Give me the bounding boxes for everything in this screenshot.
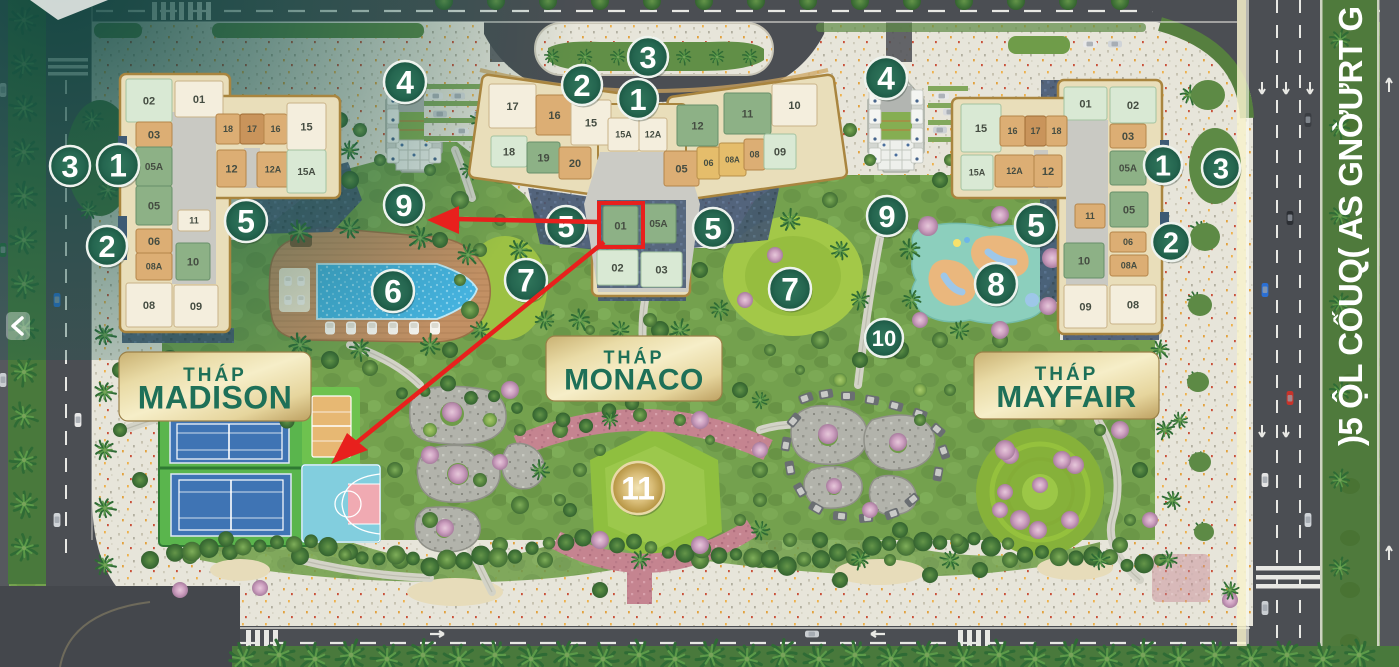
svg-text:17: 17 [247, 124, 257, 134]
svg-text:05: 05 [675, 163, 687, 175]
svg-text:9: 9 [395, 188, 412, 223]
svg-text:05A: 05A [649, 219, 667, 230]
svg-text:09: 09 [190, 301, 202, 313]
svg-text:16: 16 [270, 124, 280, 134]
svg-text:20: 20 [569, 158, 581, 170]
svg-text:11: 11 [189, 216, 199, 226]
svg-text:06: 06 [148, 236, 160, 248]
svg-text:10: 10 [788, 100, 800, 112]
svg-text:09: 09 [774, 146, 786, 158]
svg-text:15A: 15A [615, 130, 632, 140]
svg-text:03: 03 [148, 129, 160, 141]
svg-text:05: 05 [148, 200, 160, 212]
svg-text:11: 11 [1085, 211, 1095, 221]
svg-text:17: 17 [1030, 126, 1040, 136]
svg-text:15A: 15A [969, 168, 986, 178]
svg-text:01: 01 [193, 94, 205, 106]
svg-text:10: 10 [187, 256, 199, 268]
svg-text:)5 ỘL CỐUQ( AS GNỜƯRT G: )5 ỘL CỐUQ( AS GNỜƯRT G [1331, 6, 1369, 446]
svg-text:5: 5 [237, 204, 255, 240]
svg-text:MONACO: MONACO [564, 363, 704, 396]
svg-text:17: 17 [506, 101, 518, 113]
svg-text:12A: 12A [265, 165, 282, 175]
svg-text:10: 10 [872, 326, 896, 351]
svg-text:7: 7 [781, 272, 799, 308]
svg-text:3: 3 [1213, 153, 1229, 185]
svg-text:05A: 05A [1119, 164, 1137, 175]
svg-text:12A: 12A [1006, 166, 1023, 176]
svg-text:12: 12 [691, 120, 703, 132]
svg-text:MAYFAIR: MAYFAIR [996, 379, 1136, 414]
svg-text:8: 8 [987, 267, 1005, 303]
svg-text:MADISON: MADISON [138, 380, 293, 416]
svg-text:11: 11 [742, 108, 754, 120]
svg-text:15: 15 [300, 121, 312, 133]
svg-text:18: 18 [1051, 126, 1061, 136]
svg-text:09: 09 [1079, 301, 1091, 313]
svg-text:5: 5 [557, 209, 574, 244]
svg-text:3: 3 [639, 40, 656, 75]
svg-text:08: 08 [1127, 299, 1139, 311]
svg-text:16: 16 [1007, 126, 1017, 136]
svg-text:08A: 08A [725, 155, 740, 164]
svg-text:16: 16 [548, 110, 560, 122]
svg-text:18: 18 [223, 124, 233, 134]
svg-text:12A: 12A [645, 130, 662, 140]
svg-text:15: 15 [585, 117, 597, 129]
svg-text:05: 05 [1123, 204, 1135, 216]
svg-text:2: 2 [98, 229, 115, 264]
svg-text:1: 1 [1155, 150, 1171, 182]
svg-text:2: 2 [1163, 227, 1179, 259]
svg-text:1: 1 [629, 82, 646, 117]
svg-text:02: 02 [611, 262, 623, 274]
svg-text:03: 03 [1122, 131, 1134, 143]
svg-text:9: 9 [878, 199, 895, 234]
svg-text:2: 2 [573, 68, 590, 103]
svg-text:10: 10 [1078, 255, 1090, 267]
svg-text:01: 01 [614, 220, 626, 232]
svg-text:6: 6 [384, 274, 402, 310]
svg-text:5: 5 [1027, 208, 1045, 244]
svg-text:08A: 08A [146, 262, 163, 272]
svg-text:03: 03 [655, 264, 667, 276]
svg-text:05A: 05A [145, 162, 163, 173]
svg-text:02: 02 [143, 95, 155, 107]
svg-text:12: 12 [1042, 166, 1054, 178]
svg-text:11: 11 [621, 471, 655, 507]
svg-text:7: 7 [517, 263, 535, 299]
svg-text:08A: 08A [1121, 261, 1138, 271]
svg-text:1: 1 [109, 148, 127, 184]
svg-text:06: 06 [703, 158, 713, 168]
svg-text:12: 12 [225, 163, 237, 175]
svg-text:19: 19 [537, 152, 549, 164]
svg-text:01: 01 [1079, 98, 1091, 110]
svg-text:4: 4 [877, 61, 895, 97]
svg-text:3: 3 [61, 149, 78, 184]
svg-text:15A: 15A [297, 167, 315, 178]
svg-text:15: 15 [975, 123, 987, 135]
svg-text:06: 06 [1123, 237, 1133, 247]
svg-text:02: 02 [1127, 100, 1139, 112]
svg-text:5: 5 [704, 211, 721, 246]
svg-text:08: 08 [749, 150, 759, 160]
svg-text:08: 08 [143, 300, 155, 312]
svg-text:4: 4 [396, 65, 414, 101]
svg-text:18: 18 [503, 146, 515, 158]
